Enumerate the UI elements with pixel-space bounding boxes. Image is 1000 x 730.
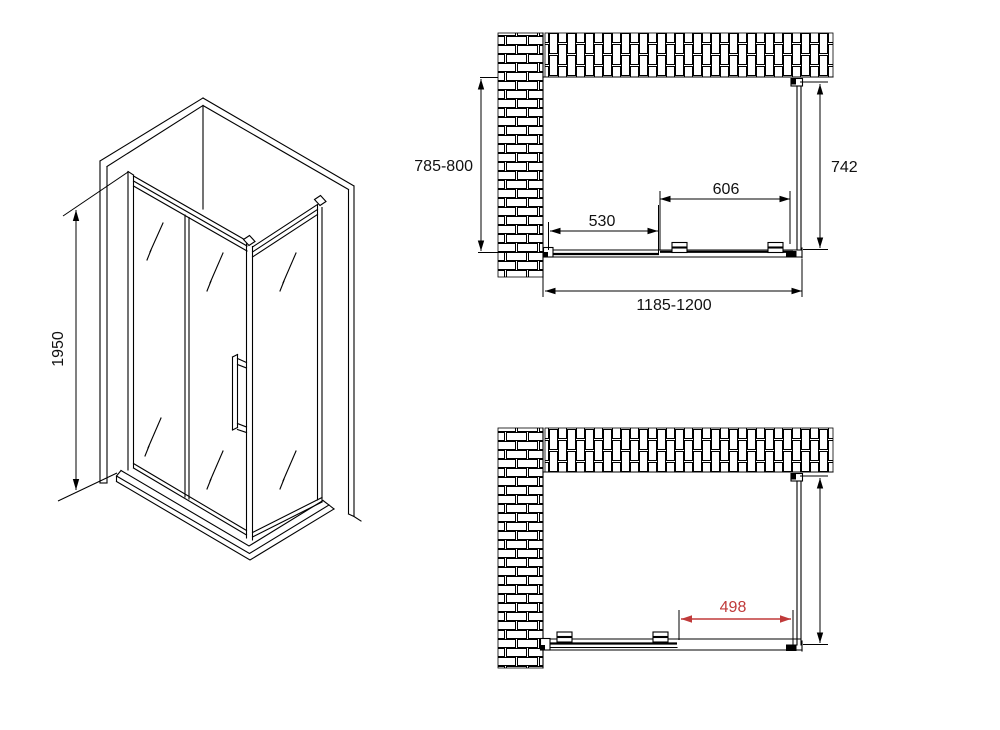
isometric-view: 1950 <box>50 98 361 560</box>
sliding-door-track <box>544 243 803 259</box>
dim-label-498: 498 <box>720 599 747 616</box>
dim-label-530: 530 <box>589 213 616 230</box>
wall-profile-cap <box>315 196 327 206</box>
drawing-page: 1950 <box>0 0 1000 730</box>
dimension-side-unlabeled <box>800 476 828 645</box>
plan-view-door-open: 498 <box>498 428 833 668</box>
corner-post-cap <box>244 236 256 246</box>
dimension-opening-498: 498 <box>679 599 793 649</box>
dimension-total-1185-1200: 1185-1200 <box>543 259 802 314</box>
shower-enclosure <box>117 172 335 561</box>
brick-wall-top <box>545 428 833 472</box>
roller-carriage <box>557 632 572 642</box>
glass-reflection-marks <box>145 223 296 489</box>
dimension-door-606: 606 <box>660 181 790 250</box>
sliding-door-track <box>541 632 803 651</box>
brick-wall-left <box>498 428 543 668</box>
roller-carriage <box>653 632 668 642</box>
dim-label-742: 742 <box>831 159 858 176</box>
dimension-fixed-530: 530 <box>549 205 659 253</box>
door-end-block <box>786 251 797 258</box>
side-glass-panel <box>791 79 803 251</box>
dimension-height-1950: 1950 <box>50 172 128 501</box>
brick-wall-top <box>545 33 833 77</box>
brick-wall-left <box>498 33 543 277</box>
door-handle <box>233 355 247 433</box>
plan-view-door-closed: 785-800 742 606 530 <box>414 33 858 314</box>
dim-label-785-800: 785-800 <box>414 158 473 175</box>
technical-drawing: 1950 <box>0 0 1000 730</box>
shower-tray <box>117 471 335 561</box>
door-end-block <box>786 645 797 652</box>
dim-label-1185-1200: 1185-1200 <box>636 297 711 314</box>
roller-carriage <box>672 243 687 253</box>
dim-label-1950: 1950 <box>50 331 67 367</box>
roller-carriage <box>768 243 783 253</box>
dim-label-606: 606 <box>713 181 740 198</box>
dimension-side-742: 742 <box>800 82 858 250</box>
